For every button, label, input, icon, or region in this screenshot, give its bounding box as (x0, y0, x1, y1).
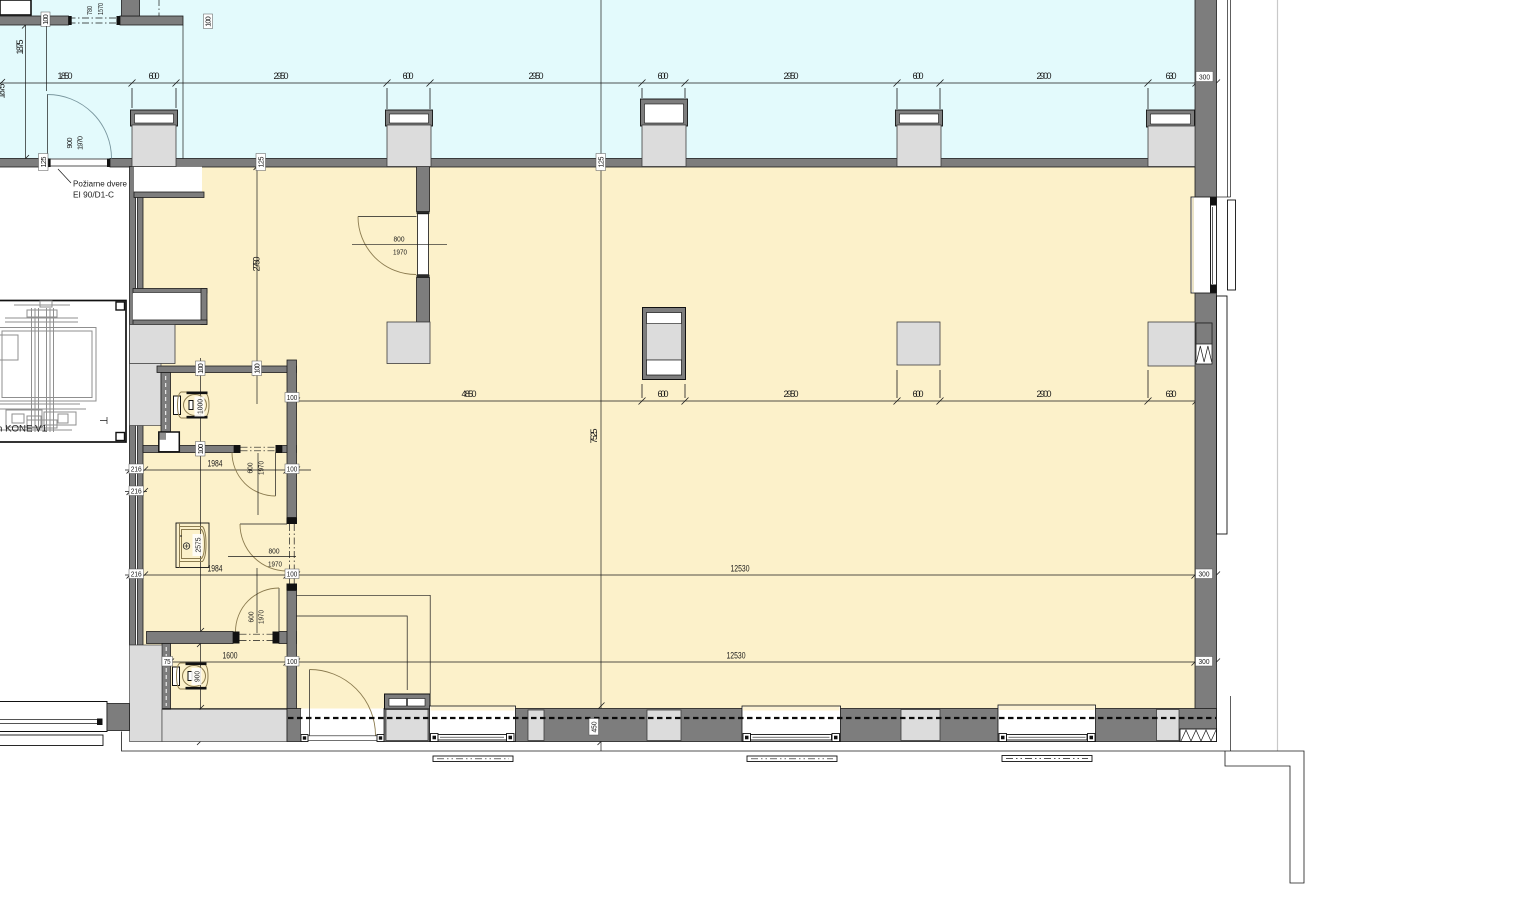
svg-text:7525: 7525 (589, 429, 599, 444)
svg-text:600: 600 (913, 71, 924, 81)
svg-text:900: 900 (193, 671, 202, 682)
svg-text:2950: 2950 (784, 389, 799, 399)
svg-text:600: 600 (149, 71, 160, 81)
svg-text:780: 780 (85, 6, 94, 15)
svg-text:1570: 1570 (96, 3, 105, 15)
svg-text:2750: 2750 (252, 257, 262, 272)
svg-text:216: 216 (131, 465, 142, 474)
svg-text:100: 100 (287, 465, 298, 474)
svg-text:300: 300 (1199, 570, 1210, 579)
svg-text:600: 600 (246, 463, 255, 474)
svg-text:EI 90/D1-C: EI 90/D1-C (73, 191, 114, 200)
svg-text:1984: 1984 (208, 459, 223, 469)
svg-text:630: 630 (1166, 389, 1177, 399)
svg-text:12530: 12530 (731, 564, 750, 574)
svg-text:600: 600 (913, 389, 924, 399)
svg-text:100: 100 (204, 16, 213, 27)
svg-text:600: 600 (658, 389, 669, 399)
svg-text:h KONE V1: h KONE V1 (0, 424, 47, 434)
svg-text:2900: 2900 (1037, 71, 1052, 81)
svg-text:Požiarne dvere: Požiarne dvere (73, 180, 128, 189)
svg-text:2575: 2575 (194, 538, 203, 553)
svg-text:1850: 1850 (58, 71, 73, 81)
svg-text:1000: 1000 (196, 399, 205, 414)
svg-text:1984: 1984 (208, 564, 223, 574)
svg-text:4850: 4850 (462, 389, 477, 399)
svg-text:100: 100 (41, 14, 50, 25)
svg-text:216: 216 (131, 570, 142, 579)
svg-text:2900: 2900 (1037, 389, 1052, 399)
svg-text:100: 100 (196, 444, 205, 455)
svg-text:1970: 1970 (257, 610, 266, 624)
svg-text:800: 800 (394, 235, 405, 244)
svg-text:2950: 2950 (529, 71, 544, 81)
svg-text:630: 630 (1166, 71, 1177, 81)
svg-text:1970: 1970 (257, 461, 266, 475)
svg-text:12530: 12530 (727, 651, 746, 661)
svg-text:100: 100 (287, 570, 298, 579)
svg-text:1875: 1875 (15, 40, 25, 55)
svg-text:1600: 1600 (223, 651, 238, 661)
svg-text:100: 100 (196, 363, 205, 374)
svg-text:75: 75 (164, 657, 171, 666)
svg-text:100: 100 (287, 393, 298, 402)
svg-text:1970: 1970 (268, 560, 282, 569)
svg-text:2950: 2950 (274, 71, 289, 81)
svg-text:1970: 1970 (76, 136, 85, 150)
svg-text:900: 900 (65, 138, 74, 149)
svg-text:125: 125 (257, 157, 266, 168)
svg-text:1875: 1875 (0, 84, 7, 99)
svg-text:300: 300 (1199, 73, 1210, 82)
svg-text:216: 216 (131, 487, 142, 496)
svg-text:600: 600 (247, 612, 256, 623)
svg-text:800: 800 (269, 547, 280, 556)
svg-text:300: 300 (1199, 657, 1210, 666)
svg-text:600: 600 (403, 71, 414, 81)
svg-text:600: 600 (658, 71, 669, 81)
svg-text:125: 125 (39, 157, 48, 168)
svg-text:450: 450 (589, 722, 598, 733)
svg-text:100: 100 (253, 363, 262, 374)
svg-text:125: 125 (597, 157, 606, 168)
svg-text:2950: 2950 (784, 71, 799, 81)
svg-text:1970: 1970 (393, 248, 407, 257)
svg-text:100: 100 (287, 657, 298, 666)
